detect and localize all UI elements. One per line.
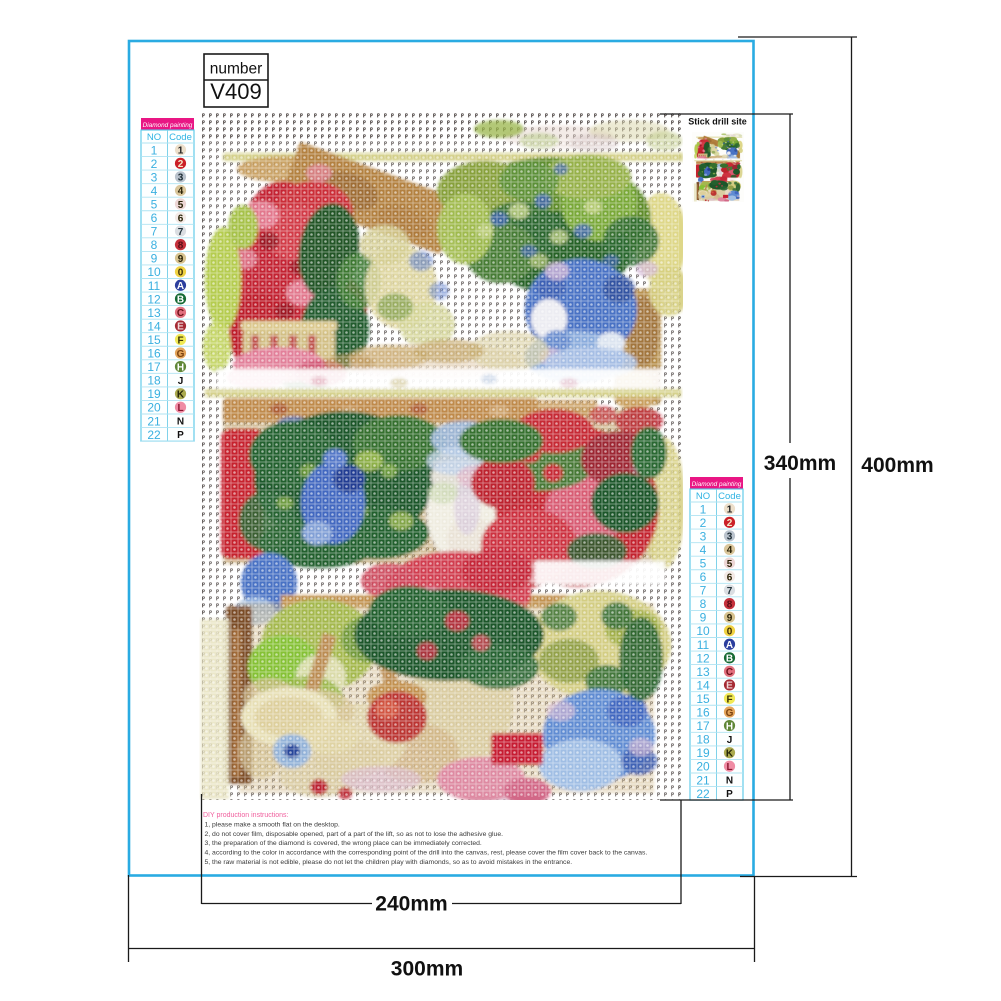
svg-text:1: 1 <box>151 143 158 157</box>
svg-text:5: 5 <box>727 559 733 570</box>
svg-text:P: P <box>726 789 733 800</box>
svg-text:2: 2 <box>700 516 707 530</box>
svg-text:F: F <box>177 335 183 346</box>
svg-text:G: G <box>726 708 734 719</box>
svg-text:6: 6 <box>178 213 184 224</box>
svg-text:14: 14 <box>147 319 161 333</box>
svg-text:1: 1 <box>178 146 184 157</box>
svg-text:E: E <box>177 322 184 333</box>
svg-text:10: 10 <box>147 265 161 279</box>
svg-text:1: 1 <box>727 505 733 516</box>
svg-text:300mm: 300mm <box>391 958 463 981</box>
svg-text:16: 16 <box>696 706 710 720</box>
svg-text:19: 19 <box>696 746 710 760</box>
svg-text:20: 20 <box>147 401 161 415</box>
svg-text:7: 7 <box>178 227 184 238</box>
svg-text:H: H <box>726 721 733 732</box>
svg-text:8: 8 <box>700 597 707 611</box>
svg-text:DIY production instructions:: DIY production instructions: <box>203 812 289 819</box>
svg-text:P: P <box>177 430 184 441</box>
svg-text:2: 2 <box>151 157 158 171</box>
svg-text:9: 9 <box>700 611 707 625</box>
svg-text:8: 8 <box>151 238 158 252</box>
svg-text:3: 3 <box>727 532 733 543</box>
svg-text:1, please make a smooth flat o: 1, please make a smooth flat on the desk… <box>205 822 340 829</box>
svg-text:NO: NO <box>696 491 710 502</box>
svg-text:0: 0 <box>727 627 733 638</box>
svg-text:2: 2 <box>178 159 184 170</box>
svg-text:20: 20 <box>696 760 710 774</box>
svg-text:B: B <box>177 295 184 306</box>
svg-text:13: 13 <box>696 665 710 679</box>
svg-text:Diamond painting: Diamond painting <box>692 481 742 488</box>
svg-text:H: H <box>177 362 184 373</box>
svg-text:6: 6 <box>151 211 158 225</box>
svg-text:N: N <box>177 417 184 428</box>
svg-text:22: 22 <box>696 787 710 801</box>
svg-text:7: 7 <box>151 225 158 239</box>
svg-text:5: 5 <box>178 200 184 211</box>
svg-text:4: 4 <box>178 186 184 197</box>
svg-text:C: C <box>177 308 184 319</box>
svg-text:Code: Code <box>169 132 192 143</box>
svg-text:L: L <box>726 762 732 773</box>
svg-text:16: 16 <box>147 347 161 361</box>
svg-text:12: 12 <box>147 292 161 306</box>
svg-text:5, the raw material is not edi: 5, the raw material is not edible, pleas… <box>205 859 573 866</box>
svg-text:340mm: 340mm <box>764 452 836 475</box>
svg-text:number: number <box>210 61 263 78</box>
svg-text:7: 7 <box>727 586 733 597</box>
svg-text:2, do not cover film, disposab: 2, do not cover film, disposable opened,… <box>205 831 504 838</box>
svg-text:15: 15 <box>696 692 710 706</box>
svg-text:15: 15 <box>147 333 161 347</box>
svg-text:A: A <box>177 281 184 292</box>
svg-text:V409: V409 <box>210 79 261 104</box>
svg-text:11: 11 <box>148 279 161 293</box>
svg-text:14: 14 <box>696 678 710 692</box>
svg-text:17: 17 <box>147 360 161 374</box>
svg-text:J: J <box>178 376 184 387</box>
svg-text:Stick drill site: Stick drill site <box>688 117 747 127</box>
svg-text:3, the preparation of the diam: 3, the preparation of the diamond is cov… <box>205 840 482 847</box>
svg-text:1: 1 <box>700 502 707 516</box>
svg-text:18: 18 <box>147 374 161 388</box>
svg-text:C: C <box>726 667 733 678</box>
svg-text:J: J <box>727 735 733 746</box>
svg-text:9: 9 <box>151 252 158 266</box>
svg-text:17: 17 <box>696 719 710 733</box>
svg-text:G: G <box>177 349 185 360</box>
svg-text:12: 12 <box>696 651 710 665</box>
svg-text:4: 4 <box>151 184 158 198</box>
svg-text:5: 5 <box>151 197 158 211</box>
svg-text:K: K <box>726 748 734 759</box>
svg-text:4, according to the color in a: 4, according to the color in accordance … <box>205 850 648 857</box>
svg-text:L: L <box>177 403 183 414</box>
svg-text:NO: NO <box>147 132 161 143</box>
svg-text:19: 19 <box>147 387 161 401</box>
svg-text:18: 18 <box>696 733 710 747</box>
svg-text:400mm: 400mm <box>861 454 933 477</box>
svg-text:Diamond painting: Diamond painting <box>143 122 193 129</box>
svg-text:F: F <box>726 694 732 705</box>
svg-text:3: 3 <box>700 529 707 543</box>
svg-text:E: E <box>726 681 733 692</box>
svg-text:3: 3 <box>151 170 158 184</box>
svg-text:8: 8 <box>727 599 733 610</box>
svg-text:0: 0 <box>178 268 184 279</box>
svg-text:9: 9 <box>178 254 184 265</box>
svg-text:9: 9 <box>727 613 733 624</box>
svg-text:B: B <box>726 654 733 665</box>
svg-text:22: 22 <box>147 428 161 442</box>
svg-text:6: 6 <box>700 570 707 584</box>
svg-text:11: 11 <box>697 638 710 652</box>
svg-text:6: 6 <box>727 572 733 583</box>
svg-text:3: 3 <box>178 173 184 184</box>
svg-text:10: 10 <box>696 624 710 638</box>
svg-text:4: 4 <box>727 545 733 556</box>
svg-text:8: 8 <box>178 240 184 251</box>
svg-text:K: K <box>177 389 185 400</box>
svg-text:240mm: 240mm <box>375 893 447 916</box>
svg-text:21: 21 <box>696 773 710 787</box>
svg-text:13: 13 <box>147 306 161 320</box>
svg-text:5: 5 <box>700 556 707 570</box>
svg-text:Code: Code <box>718 491 741 502</box>
svg-text:N: N <box>726 776 733 787</box>
svg-text:2: 2 <box>727 518 733 529</box>
svg-text:7: 7 <box>700 584 707 598</box>
svg-text:21: 21 <box>147 414 161 428</box>
svg-text:4: 4 <box>700 543 707 557</box>
svg-text:A: A <box>726 640 733 651</box>
